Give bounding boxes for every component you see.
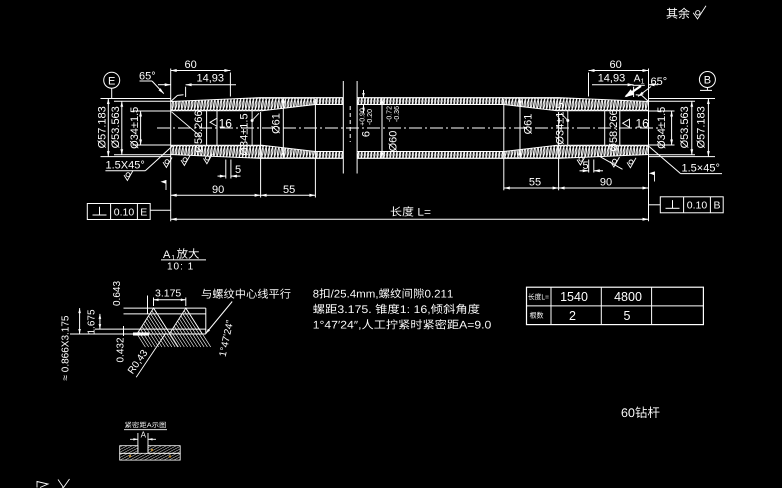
svg-text:B: B xyxy=(713,200,720,212)
svg-text:0.10: 0.10 xyxy=(114,206,135,218)
svg-text:0.643: 0.643 xyxy=(112,281,123,306)
svg-text:90: 90 xyxy=(600,176,612,188)
svg-text:Ø34±1.5: Ø34±1.5 xyxy=(239,113,251,155)
svg-text:5: 5 xyxy=(583,160,589,172)
svg-text:-0.36: -0.36 xyxy=(394,106,401,122)
svg-text:2: 2 xyxy=(569,309,576,323)
svg-text:Ø61: Ø61 xyxy=(523,114,535,135)
svg-text:Ø53.563: Ø53.563 xyxy=(679,106,691,148)
svg-text:-0.20: -0.20 xyxy=(367,109,374,125)
svg-text:Ø61: Ø61 xyxy=(271,113,283,134)
svg-text:60: 60 xyxy=(185,59,197,71)
svg-text:B: B xyxy=(704,75,711,87)
svg-text:1.5×45°: 1.5×45° xyxy=(682,162,720,174)
svg-text:A: A xyxy=(163,249,171,261)
svg-text:≈ 0.866X3.175: ≈ 0.866X3.175 xyxy=(60,315,71,380)
svg-text:Ø57.183: Ø57.183 xyxy=(96,106,108,148)
svg-text:1: 1 xyxy=(641,79,645,86)
svg-text:16: 16 xyxy=(219,117,233,131)
svg-text:1.5X45°: 1.5X45° xyxy=(106,160,145,172)
svg-text:+0.90: +0.90 xyxy=(360,108,367,126)
svg-text:3.175: 3.175 xyxy=(155,288,181,300)
svg-text:Ø60: Ø60 xyxy=(388,131,400,152)
svg-text:10: 1: 10: 1 xyxy=(167,261,194,272)
svg-text:1.675: 1.675 xyxy=(86,309,97,334)
svg-text:0.10: 0.10 xyxy=(687,200,708,212)
svg-text:5: 5 xyxy=(235,164,241,176)
svg-text:1540: 1540 xyxy=(560,290,588,304)
svg-text:14,93: 14,93 xyxy=(598,72,626,84)
svg-text:5: 5 xyxy=(624,309,631,323)
svg-text:E: E xyxy=(108,75,115,87)
svg-text:Ø34±1.5: Ø34±1.5 xyxy=(555,102,567,144)
svg-text:Ø57.183: Ø57.183 xyxy=(696,106,708,148)
svg-text:60: 60 xyxy=(610,59,622,71)
svg-text:A: A xyxy=(141,430,147,439)
svg-text:Ø34±1.5: Ø34±1.5 xyxy=(656,107,668,149)
svg-text:16: 16 xyxy=(636,117,650,131)
svg-text:6: 6 xyxy=(361,131,373,137)
svg-text:Ø34±1.5: Ø34±1.5 xyxy=(129,107,141,149)
svg-text:Ø58.266: Ø58.266 xyxy=(608,109,620,151)
svg-text:0.432: 0.432 xyxy=(115,337,126,362)
svg-text:55: 55 xyxy=(529,176,541,188)
svg-text:55: 55 xyxy=(283,184,295,196)
svg-text:E: E xyxy=(140,206,147,218)
svg-text:Ø53.563: Ø53.563 xyxy=(110,106,122,148)
svg-text:4800: 4800 xyxy=(614,290,642,304)
svg-text:-0.72: -0.72 xyxy=(387,106,394,122)
svg-text:90: 90 xyxy=(212,184,224,196)
svg-text:65°: 65° xyxy=(651,76,668,88)
svg-text:14,93: 14,93 xyxy=(197,72,225,84)
